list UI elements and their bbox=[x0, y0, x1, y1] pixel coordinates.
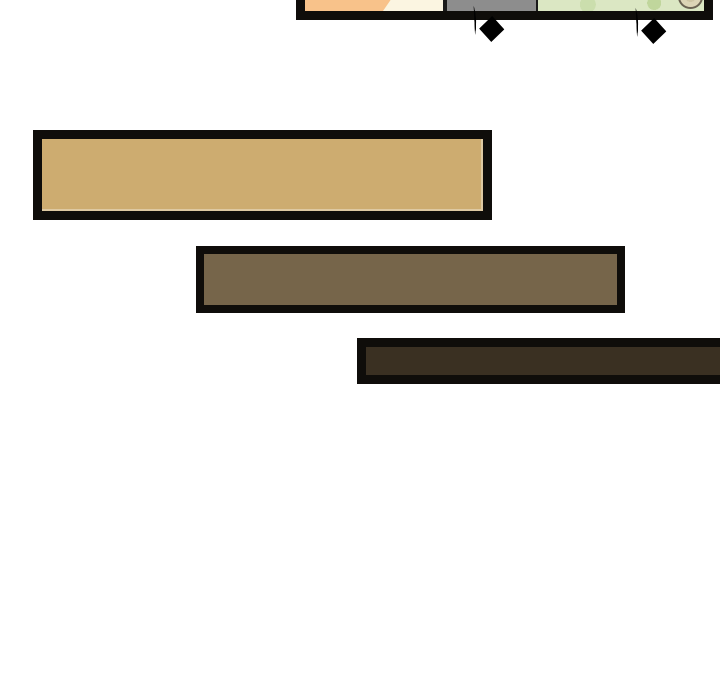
comic-panel bbox=[296, 0, 713, 20]
taupe-brown-bar bbox=[196, 246, 625, 313]
gray-head-silhouette bbox=[443, 0, 540, 11]
orange-figure-shape bbox=[305, 0, 405, 11]
tan-bar bbox=[33, 130, 492, 220]
dark-brown-bar bbox=[357, 338, 720, 384]
comic-panel-art bbox=[305, 0, 704, 11]
